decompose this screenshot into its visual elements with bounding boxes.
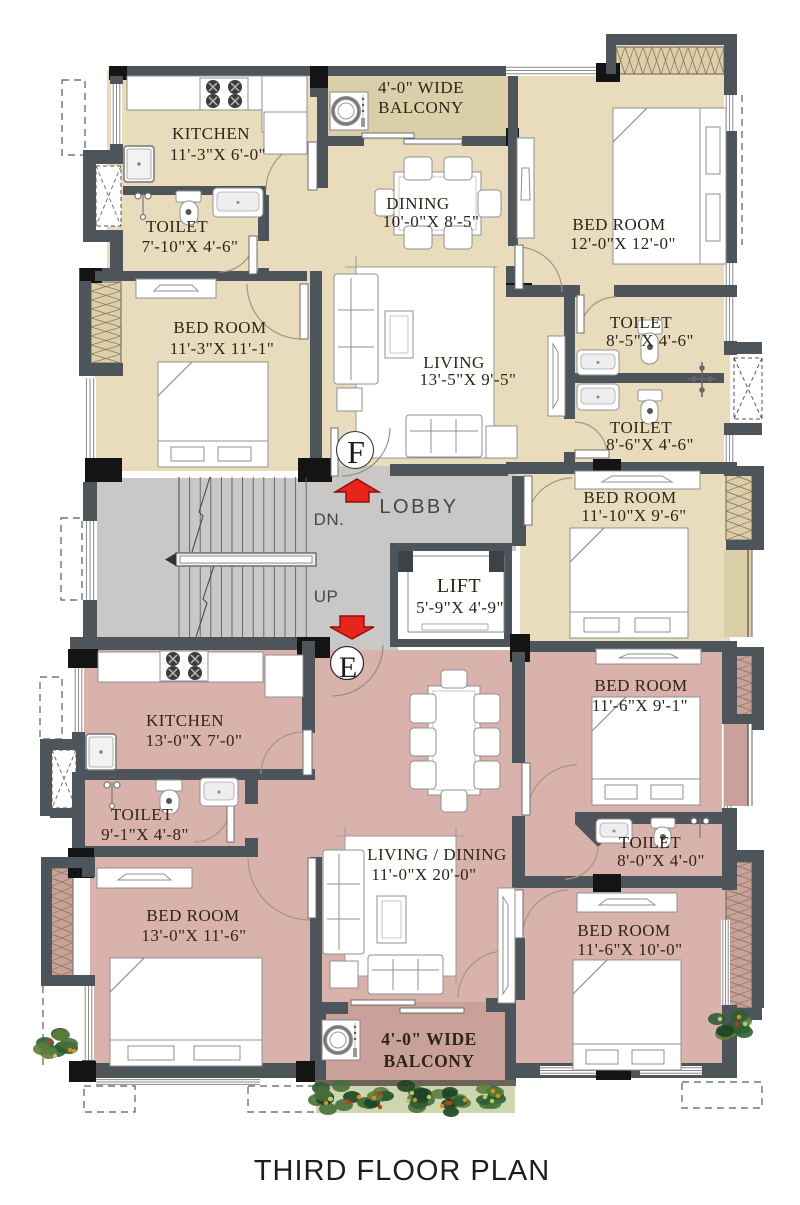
svg-text:BED ROOM: BED ROOM	[572, 215, 665, 234]
svg-text:TOILET: TOILET	[146, 217, 208, 236]
svg-text:BED ROOM: BED ROOM	[173, 318, 266, 337]
svg-text:TOILET: TOILET	[619, 833, 681, 852]
svg-text:11'-6"X 9'-1": 11'-6"X 9'-1"	[592, 696, 688, 715]
svg-text:E: E	[339, 651, 357, 684]
svg-text:DINING: DINING	[386, 194, 449, 213]
svg-text:5'-9"X 4'-9": 5'-9"X 4'-9"	[416, 598, 504, 617]
svg-text:8'-0"X 4'-0": 8'-0"X 4'-0"	[617, 851, 705, 870]
svg-text:BED ROOM: BED ROOM	[583, 488, 676, 507]
svg-text:BED ROOM: BED ROOM	[577, 921, 670, 940]
svg-text:UP: UP	[314, 587, 339, 606]
svg-text:TOILET: TOILET	[610, 313, 672, 332]
svg-text:4'-0" WIDE: 4'-0" WIDE	[381, 1029, 477, 1049]
svg-text:9'-1"X 4'-8": 9'-1"X 4'-8"	[101, 825, 189, 844]
svg-text:LIFT: LIFT	[437, 575, 481, 597]
svg-text:KITCHEN: KITCHEN	[172, 124, 250, 143]
svg-text:11'-6"X 10'-0": 11'-6"X 10'-0"	[577, 940, 682, 959]
svg-text:LIVING / DINING: LIVING / DINING	[367, 845, 507, 864]
svg-text:TOILET: TOILET	[111, 805, 173, 824]
svg-text:13'-0"X 11'-6": 13'-0"X 11'-6"	[141, 926, 246, 945]
svg-text:BED ROOM: BED ROOM	[146, 906, 239, 925]
svg-text:4'-0" WIDE: 4'-0" WIDE	[378, 78, 464, 97]
svg-text:7'-10"X 4'-6": 7'-10"X 4'-6"	[142, 237, 239, 256]
svg-text:DN.: DN.	[314, 510, 345, 529]
svg-text:8'-6"X 4'-6": 8'-6"X 4'-6"	[606, 435, 694, 454]
svg-text:12'-0"X 12'-0": 12'-0"X 12'-0"	[570, 234, 676, 253]
svg-text:BED ROOM: BED ROOM	[594, 676, 687, 695]
svg-text:11'-0"X 20'-0": 11'-0"X 20'-0"	[371, 865, 476, 884]
svg-text:10'-0"X 8'-5": 10'-0"X 8'-5"	[383, 212, 480, 231]
svg-text:13'-0"X 7'-0": 13'-0"X 7'-0"	[146, 731, 243, 750]
svg-text:11'-3"X 11'-1": 11'-3"X 11'-1"	[170, 339, 275, 358]
svg-text:BALCONY: BALCONY	[378, 98, 464, 117]
svg-text:8'-5"X 4'-6": 8'-5"X 4'-6"	[606, 331, 694, 350]
svg-text:LOBBY: LOBBY	[379, 496, 458, 518]
svg-text:KITCHEN: KITCHEN	[146, 711, 224, 730]
svg-text:11'-10"X 9'-6": 11'-10"X 9'-6"	[581, 506, 686, 525]
svg-text:THIRD FLOOR PLAN: THIRD FLOOR PLAN	[254, 1155, 550, 1187]
svg-text:13'-5"X 9'-5": 13'-5"X 9'-5"	[420, 370, 517, 389]
svg-text:11'-3"X 6'-0": 11'-3"X 6'-0"	[170, 145, 266, 164]
svg-text:F: F	[347, 434, 365, 470]
svg-text:BALCONY: BALCONY	[383, 1051, 474, 1071]
